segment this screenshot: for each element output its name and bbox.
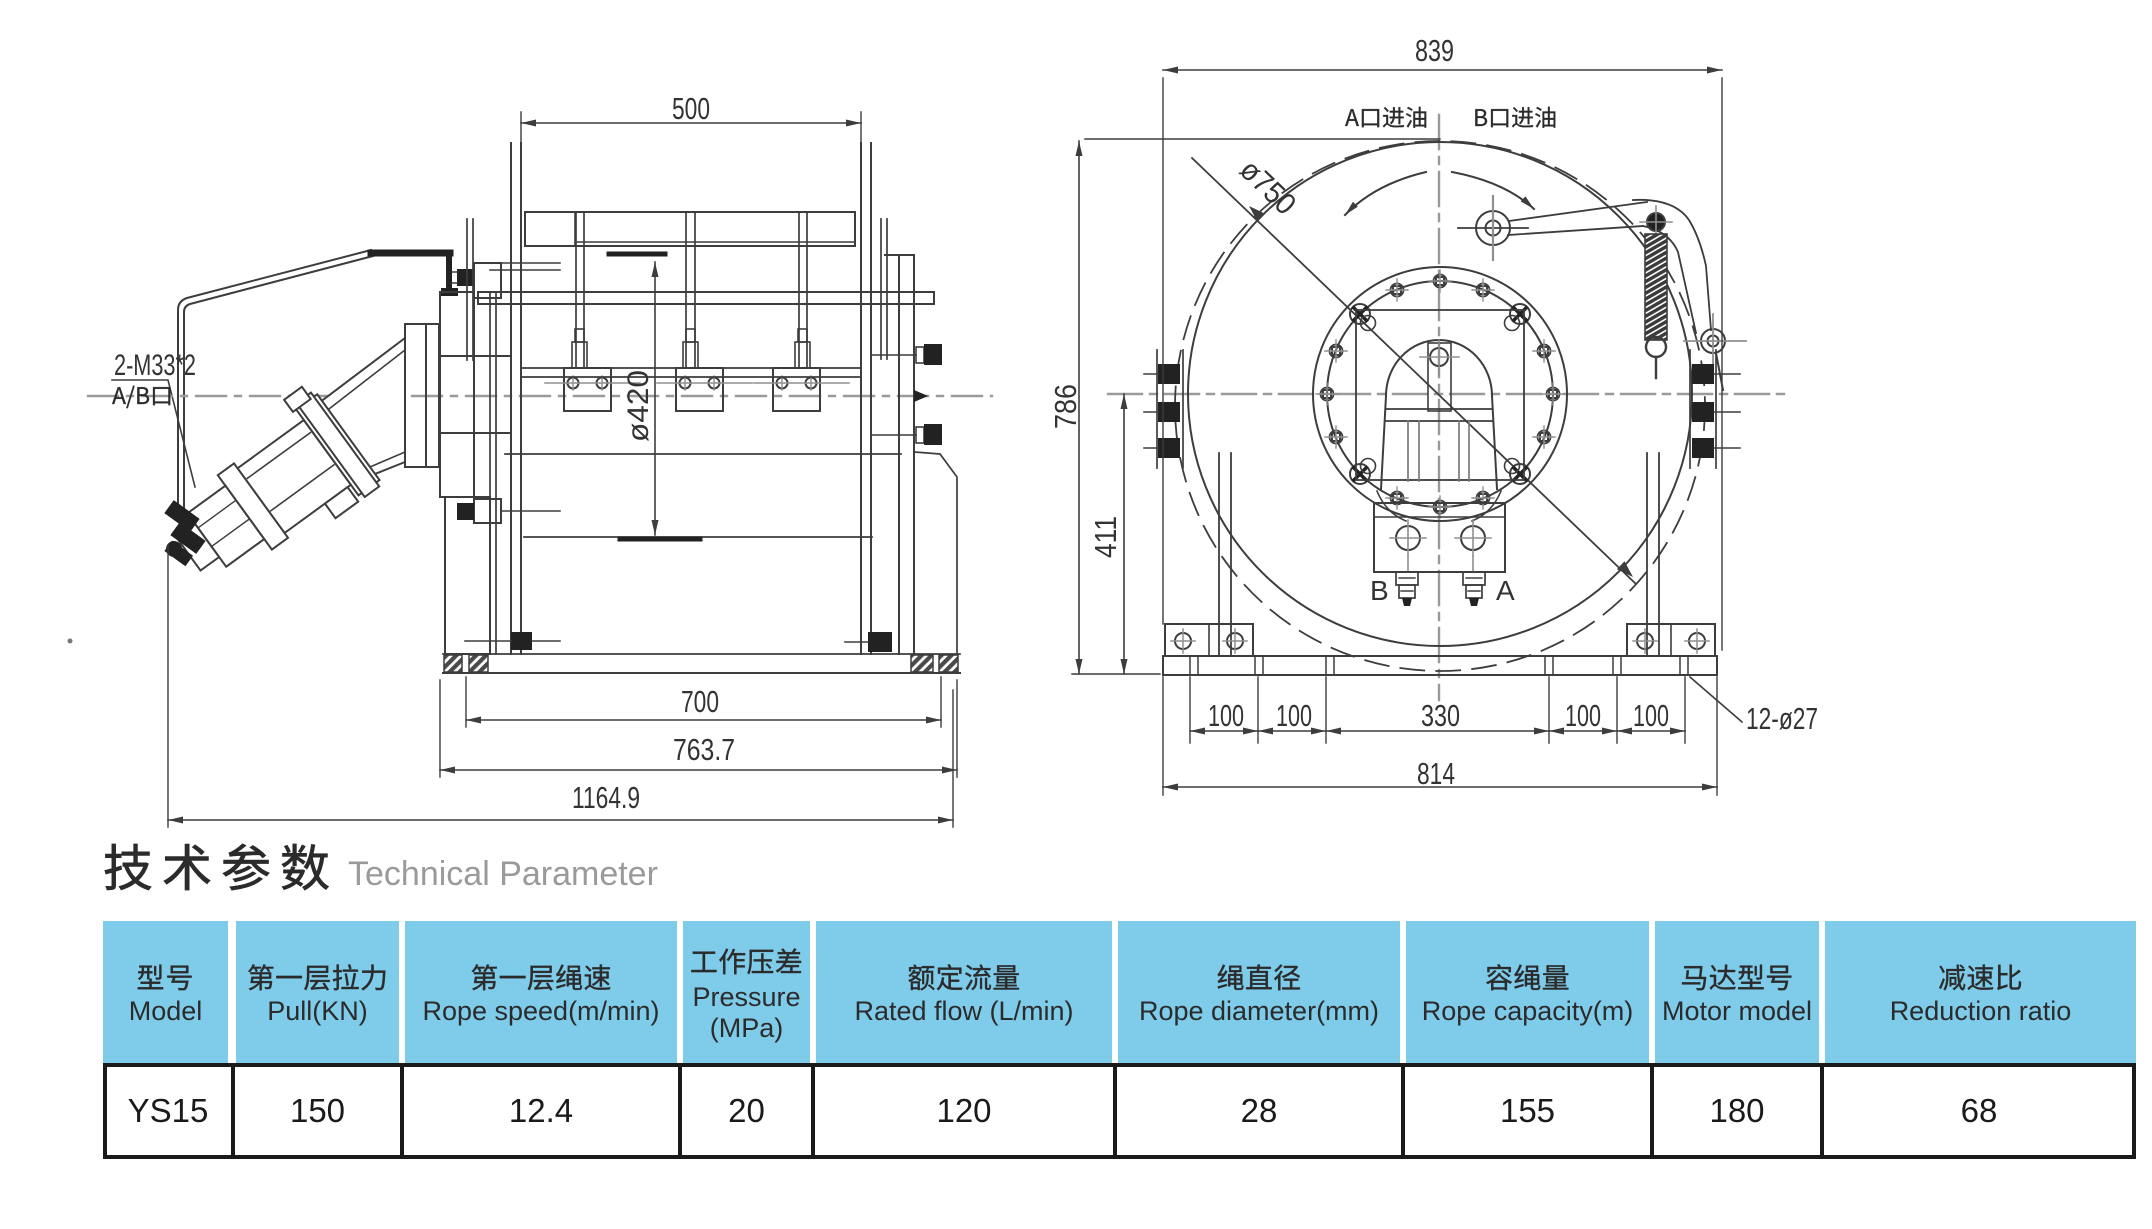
svg-text:A: A <box>1496 575 1515 606</box>
svg-text:763.7: 763.7 <box>673 732 735 767</box>
svg-text:100: 100 <box>1633 698 1669 733</box>
svg-text:700: 700 <box>681 684 719 719</box>
svg-text:100: 100 <box>1208 698 1244 733</box>
svg-text:100: 100 <box>1276 698 1312 733</box>
svg-text:786: 786 <box>1048 384 1083 429</box>
svg-text:814: 814 <box>1417 756 1455 791</box>
svg-text:ø420: ø420 <box>622 370 655 442</box>
svg-text:12-ø27: 12-ø27 <box>1746 701 1818 736</box>
svg-text:1164.9: 1164.9 <box>572 780 640 815</box>
svg-text:839: 839 <box>1415 33 1454 68</box>
svg-text:B: B <box>1370 575 1389 606</box>
svg-text:500: 500 <box>672 91 710 126</box>
svg-text:2-M33*2: 2-M33*2 <box>114 349 196 382</box>
svg-text:411: 411 <box>1088 516 1123 558</box>
svg-text:100: 100 <box>1565 698 1601 733</box>
svg-text:330: 330 <box>1421 698 1460 733</box>
